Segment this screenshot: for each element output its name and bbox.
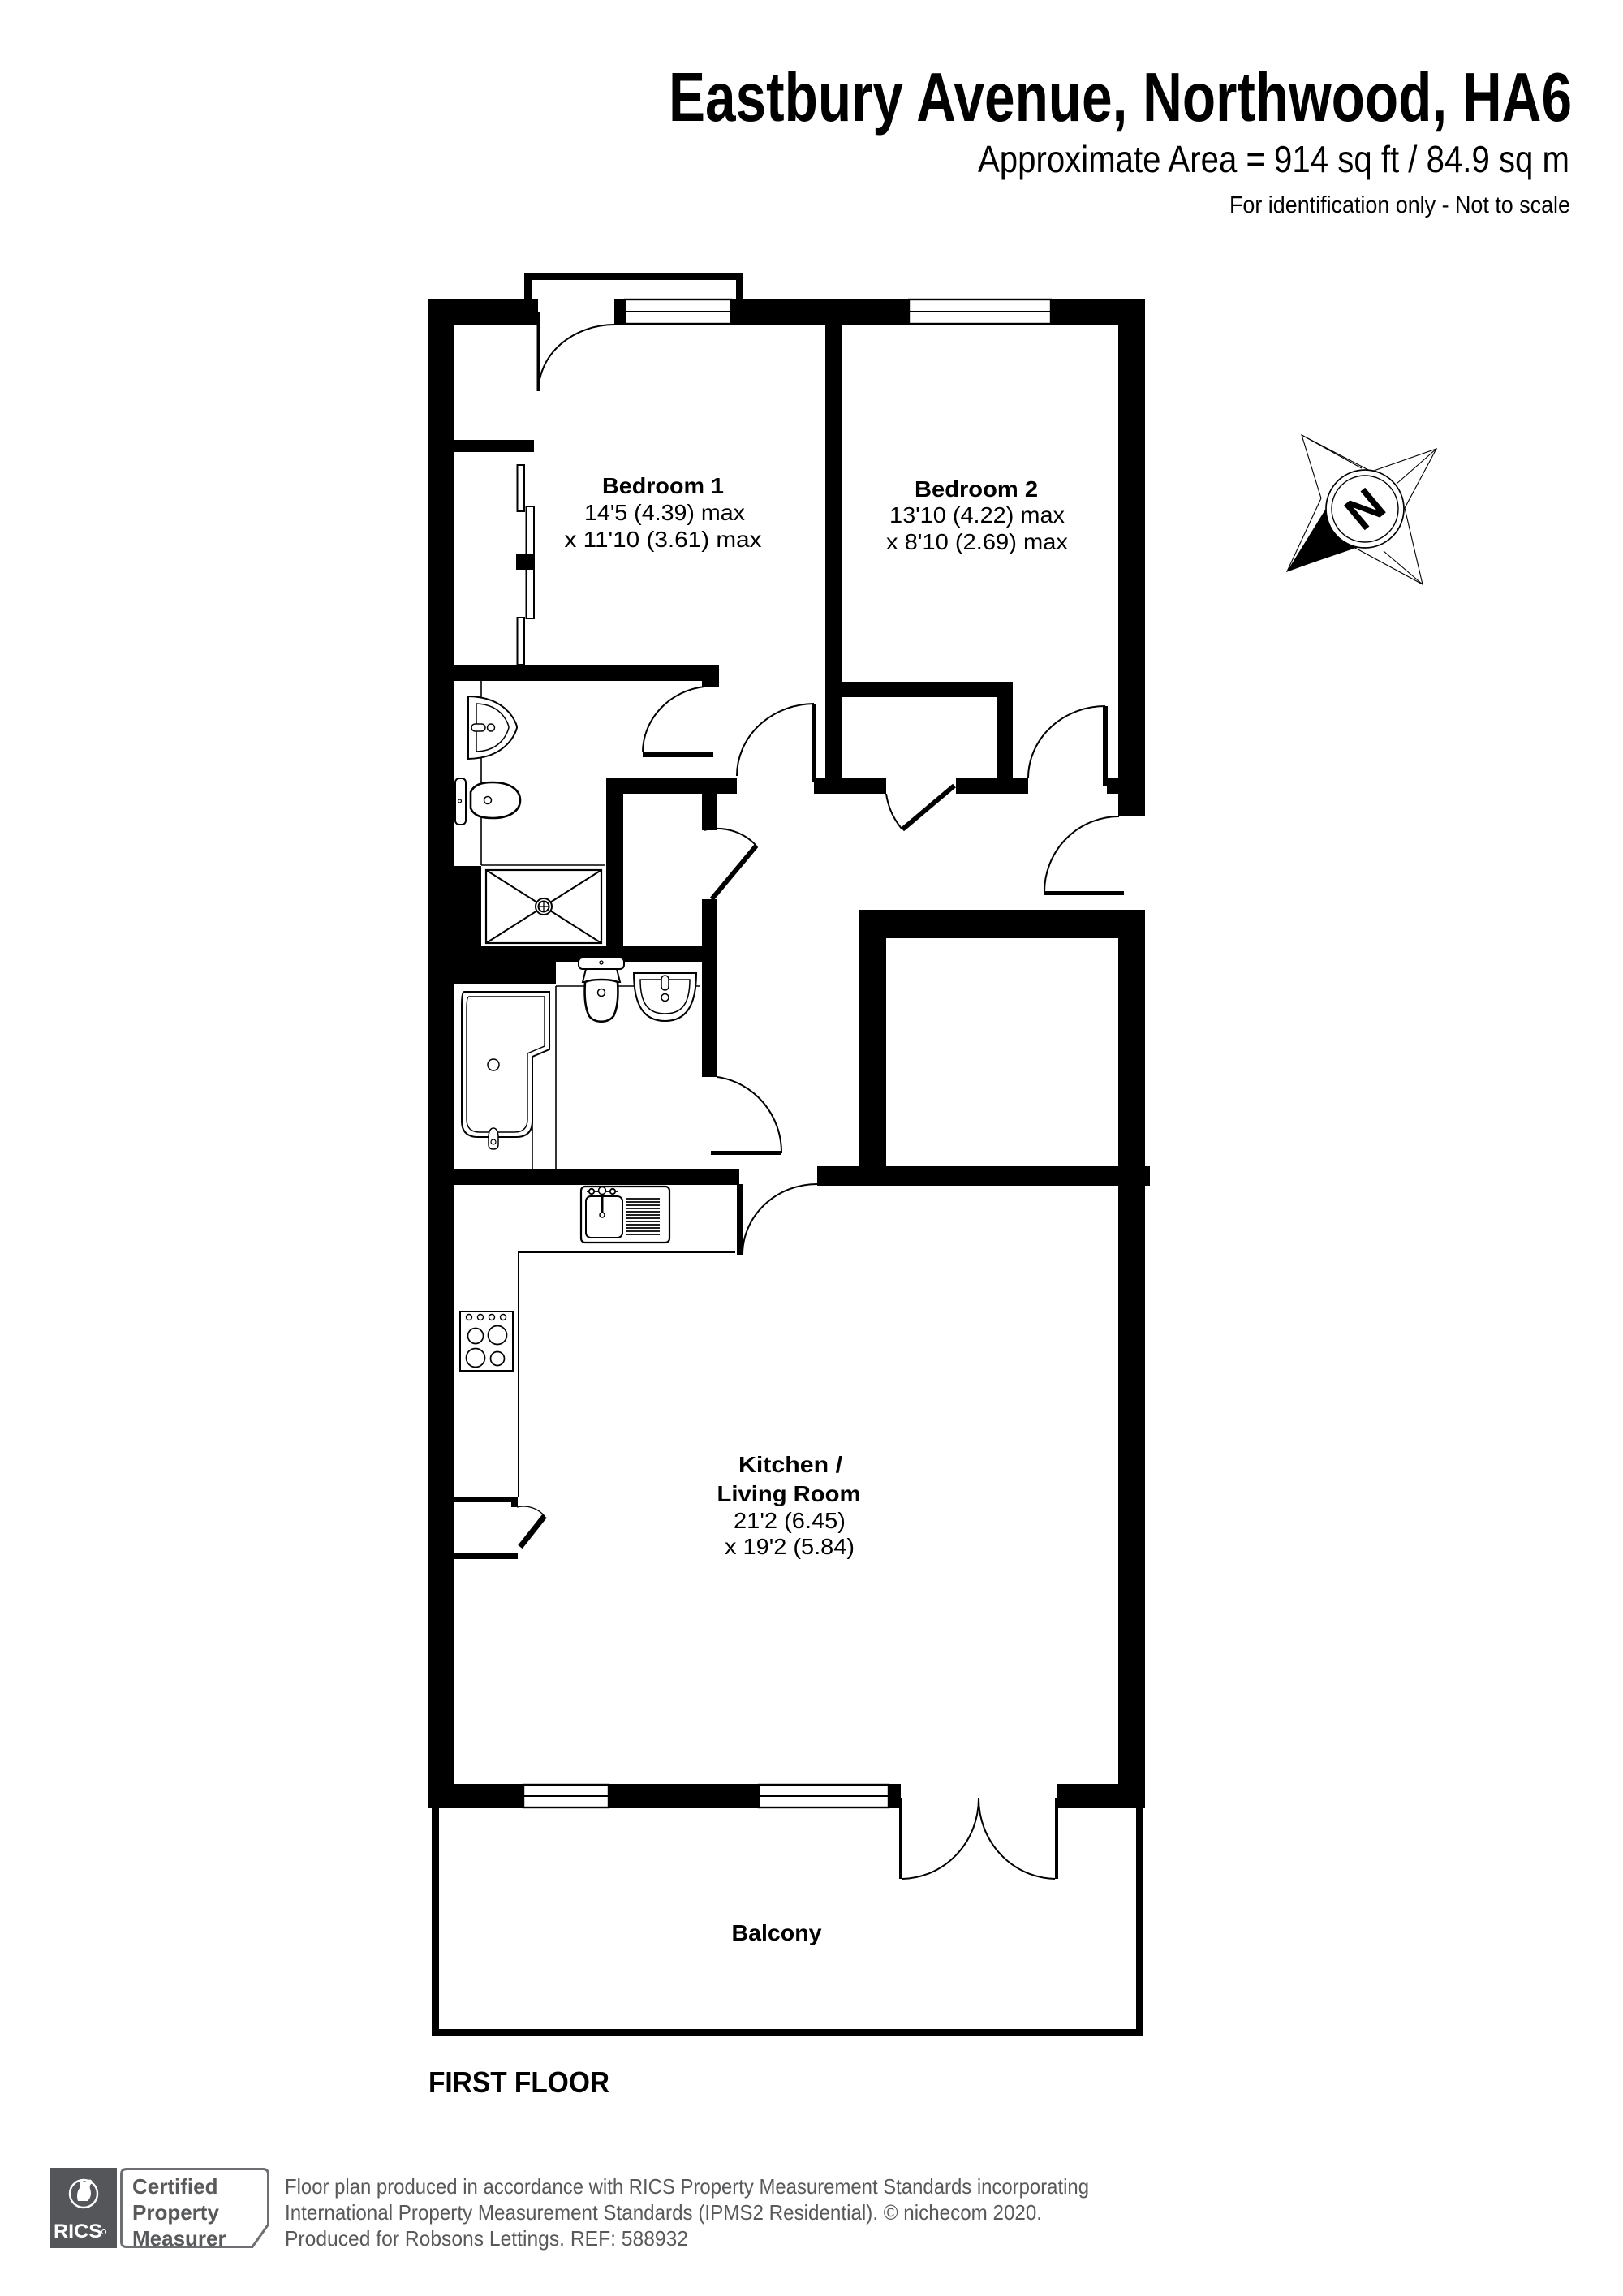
svg-text:Approximate Area = 914 sq ft /: Approximate Area = 914 sq ft / 84.9 sq m [978, 138, 1569, 180]
svg-text:Produced for Robsons Lettings.: Produced for Robsons Lettings. REF: 5889… [285, 2226, 688, 2251]
svg-text:Balcony: Balcony [732, 1920, 822, 1945]
svg-text:Eastbury Avenue, Northwood, HA: Eastbury Avenue, Northwood, HA6 [669, 59, 1572, 136]
svg-text:x 11'10 (3.61) max: x 11'10 (3.61) max [565, 527, 762, 552]
svg-text:Property: Property [132, 2200, 219, 2225]
svg-text:21'2 (6.45): 21'2 (6.45) [734, 1508, 846, 1533]
svg-text:x 19'2 (5.84): x 19'2 (5.84) [725, 1534, 855, 1559]
svg-text:Bedroom 1: Bedroom 1 [602, 473, 724, 498]
svg-text:Living Room: Living Room [717, 1481, 861, 1506]
svg-text:For identification only - Not: For identification only - Not to scale [1229, 192, 1570, 218]
svg-text:Certified: Certified [132, 2174, 217, 2199]
svg-text:13'10 (4.22) max: 13'10 (4.22) max [889, 502, 1065, 528]
svg-text:Measurer: Measurer [132, 2226, 226, 2251]
svg-text:14'5 (4.39) max: 14'5 (4.39) max [584, 500, 745, 525]
svg-text:x 8'10 (2.69) max: x 8'10 (2.69) max [886, 529, 1068, 554]
svg-text:Kitchen /: Kitchen / [738, 1452, 842, 1477]
svg-text:FIRST FLOOR: FIRST FLOOR [428, 2066, 609, 2099]
svg-text:RICS: RICS [54, 2221, 102, 2242]
svg-text:Floor plan produced in accorda: Floor plan produced in accordance with R… [285, 2174, 1089, 2199]
svg-text:International Property Measure: International Property Measurement Stand… [285, 2200, 1042, 2225]
svg-text:Bedroom 2: Bedroom 2 [915, 476, 1038, 502]
